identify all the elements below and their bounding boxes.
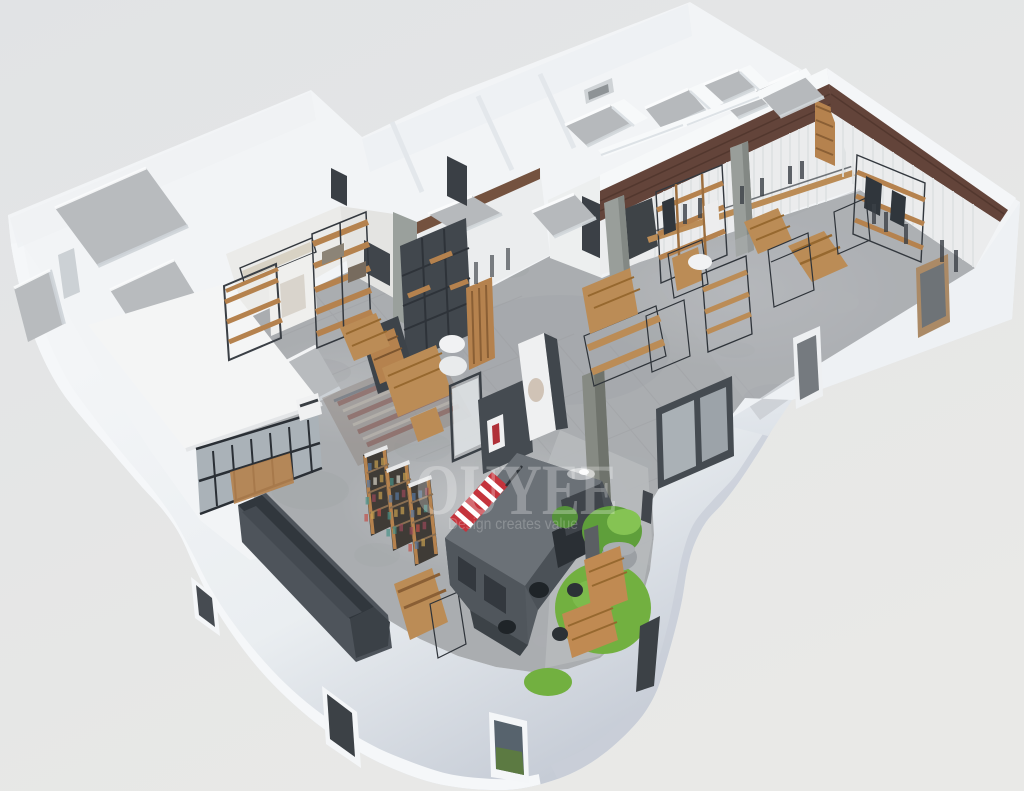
svg-text:Design creates value: Design creates value [448, 516, 578, 533]
